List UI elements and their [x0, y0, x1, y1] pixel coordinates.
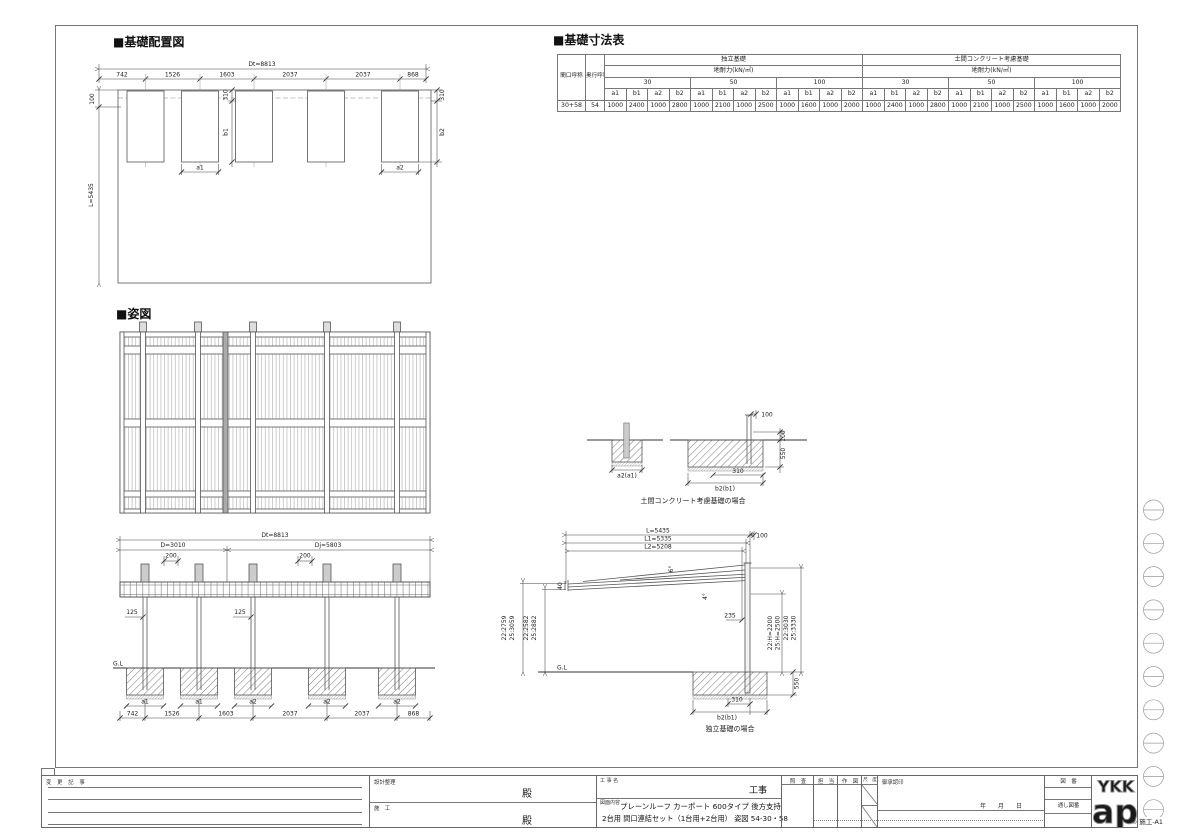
col-header: b2	[1099, 89, 1121, 100]
col-header: a2	[820, 89, 842, 100]
dim-label: 742	[116, 72, 128, 79]
dim-label: a2	[396, 165, 404, 172]
front-roof-beam	[120, 582, 430, 597]
revision-rule	[48, 799, 362, 800]
dim-label: Dt=8813	[261, 532, 288, 539]
table-row: 30+58 54 1000240010002800 10002100100025…	[558, 100, 1121, 111]
side-foundation	[693, 672, 767, 699]
table-cell: 2800	[669, 100, 691, 111]
table-row: 間口呼称 奥行呼称 独立基礎 土間コンクリート考慮基礎	[558, 55, 1121, 66]
col-header: a1	[863, 89, 885, 100]
col-header: 30	[863, 77, 949, 88]
dim-label: 310	[223, 89, 230, 101]
col-header: 地耐力(kN/㎡)	[605, 66, 863, 77]
dim-label: 550	[780, 448, 787, 460]
plan-section-title: ■基礎配置図	[113, 33, 184, 50]
plan-foundations	[127, 74, 419, 167]
col-header: 奥行呼称	[586, 55, 605, 101]
col-header: b2	[1013, 89, 1035, 100]
cell-divider	[370, 802, 597, 803]
dim-label: 22:2759	[501, 615, 508, 640]
table-cell: 2100	[712, 100, 734, 111]
drawing-content-label: 図面内容	[600, 799, 620, 806]
drawing-content-line2: 2台用 間口連結セット（1台用+2台用） 姿図 54-30・58	[602, 814, 788, 824]
roof-plan-drawing	[110, 310, 445, 525]
table-cell: 2100	[970, 100, 992, 111]
dim-label: b2(b1)	[717, 715, 737, 722]
col-header: 30	[605, 77, 691, 88]
dim-label: b2(b1)	[715, 486, 735, 493]
drawing-content-line1: プレーンルーフ カーポート 600タイプ 後方支持	[620, 801, 781, 812]
table-cell: 2800	[927, 100, 949, 111]
col-header: 独立基礎	[605, 55, 863, 66]
table-row: 30 50 100 30 50 100	[558, 77, 1121, 88]
dim-label: 1526	[164, 711, 179, 718]
project-name-value: 工事	[749, 783, 767, 796]
dim-label: L2=5208	[644, 544, 672, 551]
col-header: b1	[1056, 89, 1078, 100]
table-cell: 1000	[992, 100, 1014, 111]
cell-divider	[1045, 813, 1092, 814]
dim-label: 868	[408, 711, 420, 718]
slab-foundation-sections: a2(a1) 100 100 550 310 b2(b1) 土間コンクリート考慮…	[575, 393, 820, 528]
col-header: b1	[884, 89, 906, 100]
dim-label: 1603	[219, 72, 234, 79]
side-elevation-drawing: L=5435 L1=5335 L2=5208 100 40 6° 4° 235 …	[480, 528, 825, 750]
col-header: a1	[777, 89, 799, 100]
dim-label: 310	[731, 697, 743, 704]
dim-label: 868	[407, 72, 419, 79]
dim-label: 1603	[218, 711, 233, 718]
design-dono: 殿	[522, 785, 532, 800]
roof-posts-top	[140, 322, 401, 333]
side-labels: L=5435 L1=5335 L2=5208 100 40 6° 4° 235 …	[501, 528, 801, 733]
approval-cell: 御承認印 年 月 日	[877, 776, 1044, 827]
col-header: b1	[798, 89, 820, 100]
col-header: 間口呼称	[558, 55, 586, 101]
sheet-stamp: ® 施工-A1	[1131, 817, 1163, 826]
table-cell: 1000	[949, 100, 971, 111]
table-cell: 1000	[648, 100, 670, 111]
serial-number-label: 通し図番	[1045, 801, 1092, 809]
table-cell: 1000	[777, 100, 799, 111]
table-cell: 2500	[755, 100, 777, 111]
table-cell: 1000	[906, 100, 928, 111]
table-cell: 30+58	[558, 100, 586, 111]
col-header: a2	[648, 89, 670, 100]
dim-label: 40	[557, 582, 564, 590]
dim-label: Dj=5803	[315, 542, 342, 549]
revision-notes-cell: 変 更 記 事	[42, 776, 369, 827]
col-header: a1	[605, 89, 627, 100]
table-cell: 2000	[841, 100, 863, 111]
dim-label: 25:H=2500	[775, 616, 782, 651]
table-cell: 1000	[1078, 100, 1100, 111]
dim-label: D=3010	[161, 542, 186, 549]
table-row: a1b1a2b2 a1b1a2b2 a1b1a2b2 a1b1a2b2 a1b1…	[558, 89, 1121, 100]
col-header: a1	[949, 89, 971, 100]
dim-label: 22:2582	[523, 615, 530, 640]
contractor-label: 施 工	[374, 804, 390, 812]
cell-divider	[1045, 787, 1092, 788]
table-cell: 1000	[863, 100, 885, 111]
table-cell: 1000	[605, 100, 627, 111]
dim-label: 1526	[165, 72, 180, 79]
design-contractor-cell: 設計整理 殿 施 工 殿	[369, 776, 596, 827]
front-elevation-drawing: Dt=8813 D=3010 Dj=5803 200 200 125 125 G…	[105, 528, 460, 745]
table-cell: 2500	[1013, 100, 1035, 111]
table-cell: 1600	[1056, 100, 1078, 111]
col-header: 土間コンクリート考慮基礎	[863, 55, 1121, 66]
dim-label: 310	[732, 468, 744, 475]
scale-slash	[862, 785, 877, 804]
dim-label: 25:3330	[791, 615, 798, 640]
scale-slash	[862, 806, 877, 827]
drawing-number-cell: 図 番 通し図番	[1044, 776, 1091, 827]
dim-label: L=5435	[88, 183, 95, 207]
dim-label: b1	[223, 128, 230, 136]
dim-label: 200	[165, 553, 177, 560]
revision-rule	[48, 824, 362, 825]
dim-label: 25:2882	[531, 615, 538, 640]
cell-divider	[597, 798, 782, 799]
drawing-number-label: 図 番	[1045, 777, 1092, 785]
project-name-label: 工 事 名	[600, 777, 618, 784]
dim-label: a1	[196, 165, 204, 172]
section-caption: 独立基礎の場合	[706, 724, 755, 733]
col-header: a2	[1078, 89, 1100, 100]
angle-label: 4°	[702, 593, 709, 600]
section-right	[670, 415, 807, 471]
drawnby-label: 作 図	[838, 777, 862, 785]
dim-label: a2	[323, 699, 331, 706]
dim-label: a2	[249, 699, 257, 706]
col-header: b2	[841, 89, 863, 100]
front-post-caps	[141, 564, 401, 582]
project-cell: 工 事 名 工事 図面内容 プレーンルーフ カーポート 600タイプ 後方支持 …	[596, 776, 781, 827]
dotted-rule	[814, 820, 1045, 821]
dim-label: 310	[439, 89, 446, 101]
scale-label: 尺 度	[862, 777, 878, 783]
table-cell: 1600	[798, 100, 820, 111]
dim-label: 2037	[282, 711, 297, 718]
dim-label: 2037	[354, 711, 369, 718]
dim-label: 2037	[355, 72, 370, 79]
front-foundations	[127, 668, 416, 699]
dim-label: Dt=8813	[248, 61, 275, 68]
dim-label: 100	[780, 430, 787, 442]
foundation-dimension-table: 間口呼称 奥行呼称 独立基礎 土間コンクリート考慮基礎 地耐力(kN/㎡) 地耐…	[557, 54, 1121, 112]
dim-label: 22:3030	[783, 615, 790, 640]
revision-rule	[48, 812, 362, 813]
table-cell: 2400	[626, 100, 648, 111]
foundation-plan-drawing: Dt=8813 742 1526 1603 2037 2037 868 100 …	[85, 55, 457, 295]
check-col: 照 査	[781, 776, 813, 827]
dim-label: 742	[127, 711, 139, 718]
table-cell: 1000	[691, 100, 713, 111]
dim-label: a1	[195, 699, 203, 706]
table-cell: 1000	[1035, 100, 1057, 111]
ground-line-label: G.L	[113, 661, 124, 668]
col-header: 100	[777, 77, 863, 88]
table-cell: 1000	[734, 100, 756, 111]
col-header: b2	[669, 89, 691, 100]
design-label: 設計整理	[374, 778, 396, 786]
dim-label: 25:3059	[509, 615, 516, 640]
angle-label: 6°	[668, 566, 675, 573]
col-header: a2	[906, 89, 928, 100]
col-header: b2	[755, 89, 777, 100]
col-header: 地耐力(kN/㎡)	[863, 66, 1121, 77]
dim-label: 100	[756, 533, 768, 540]
dim-label: 125	[234, 609, 246, 616]
dim-label: 22:H=2200	[767, 616, 774, 651]
dim-label: L1=5335	[644, 536, 672, 543]
dim-label: 550	[794, 678, 801, 690]
col-header: a1	[691, 89, 713, 100]
col-header: b2	[927, 89, 949, 100]
revision-notes-label: 変 更 記 事	[46, 778, 87, 786]
approval-label: 御承認印	[882, 778, 904, 786]
cell-divider	[1045, 799, 1092, 800]
binder-hole	[1144, 800, 1164, 817]
col-header: a2	[734, 89, 756, 100]
date-label: 年 月 日	[980, 801, 1022, 810]
dim-label: 235	[724, 613, 736, 620]
dim-label: 200	[299, 553, 311, 560]
table-row: 地耐力(kN/㎡) 地耐力(kN/㎡)	[558, 66, 1121, 77]
dim-label: L=5435	[646, 528, 670, 535]
dim-label: 100	[89, 93, 96, 105]
section-caption: 土間コンクリート考慮基礎の場合	[641, 496, 746, 505]
table-cell: 2000	[1099, 100, 1121, 111]
table-cell: 1000	[820, 100, 842, 111]
side-roof	[565, 565, 750, 591]
drawing-sheet: ■基礎配置図 ■基礎寸法表 ■姿図	[0, 0, 1181, 835]
col-header: 50	[949, 77, 1035, 88]
dim-label: b2	[439, 128, 446, 136]
table-section-title: ■基礎寸法表	[553, 31, 624, 48]
col-header: b1	[712, 89, 734, 100]
incharge-label: 担 当	[814, 777, 838, 785]
dim-label: a1	[141, 699, 149, 706]
dim-label: a2	[393, 699, 401, 706]
col-header: a1	[1035, 89, 1057, 100]
dim-label: 2037	[282, 72, 297, 79]
table-cell: 2400	[884, 100, 906, 111]
binder-holes	[1140, 497, 1170, 817]
col-header: b1	[626, 89, 648, 100]
dim-label: 125	[126, 609, 138, 616]
dim-label: a2(a1)	[617, 473, 637, 480]
col-header: 100	[1035, 77, 1121, 88]
col-header: b1	[970, 89, 992, 100]
title-block: 変 更 記 事 設計整理 殿 施 工 殿 工 事 名 工事 図面内容 プレーンル…	[41, 775, 1138, 828]
revision-rule	[48, 787, 362, 788]
date-rule	[878, 810, 1045, 811]
ground-line-label: G.L	[557, 665, 568, 672]
contractor-dono: 殿	[522, 812, 532, 827]
dim-label: 100	[761, 412, 773, 419]
section-left	[587, 423, 663, 466]
table-cell: 54	[586, 100, 605, 111]
col-header: 50	[691, 77, 777, 88]
col-header: a2	[992, 89, 1014, 100]
check-label: 照 査	[782, 777, 814, 785]
